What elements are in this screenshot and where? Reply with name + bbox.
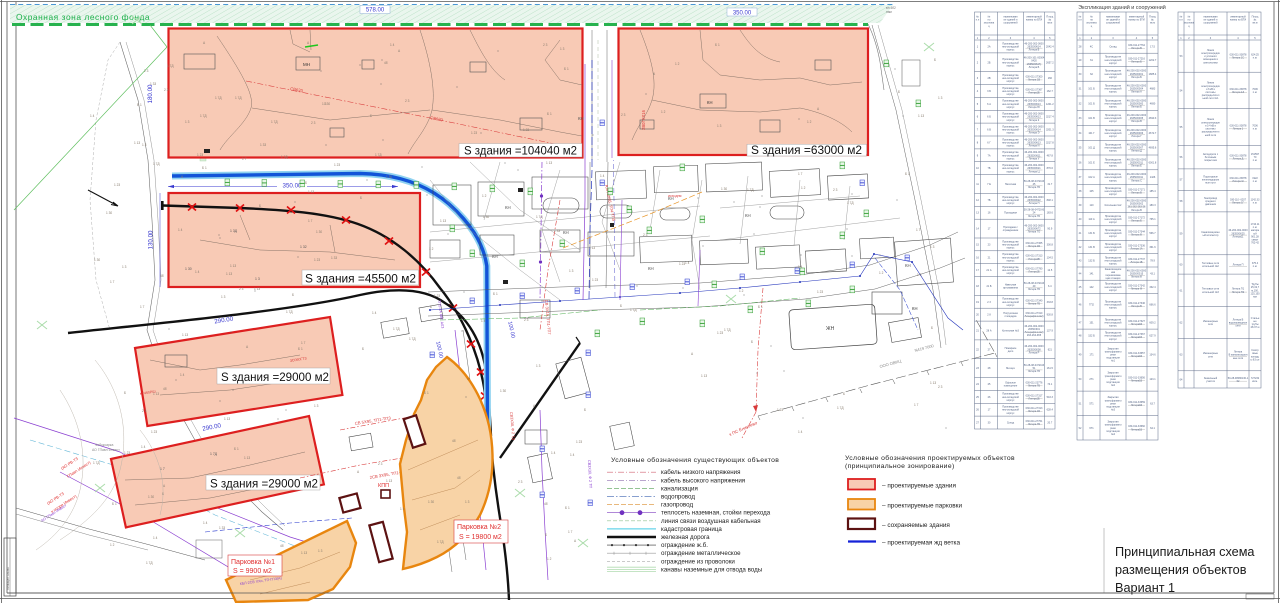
svg-text:кадастровая граница: кадастровая граница (661, 526, 722, 533)
svg-text:Литера 1Б: Литера 1Б (1028, 245, 1040, 248)
svg-text:сети: сети (1235, 325, 1241, 328)
svg-text:1885.4: 1885.4 (1149, 73, 1157, 76)
svg-text:газопровод: газопровод (661, 502, 693, 509)
svg-text:4690.3: 4690.3 (1149, 117, 1157, 120)
svg-text:корпус: корпус (1109, 120, 1117, 123)
svg-text:1 13: 1 13 (589, 246, 595, 250)
svg-text:2 3: 2 3 (543, 43, 548, 47)
svg-text:Литера П2: Литера П2 (1232, 291, 1245, 294)
svg-text:Литера ГБ: Литера ГБ (1028, 423, 1040, 426)
svg-text:123.1: 123.1 (1149, 378, 1156, 381)
svg-text:1 2: 1 2 (661, 110, 666, 114)
svg-text:Литера В: Литера В (1131, 47, 1142, 50)
svg-text:Литера Ф: Литера Ф (1131, 276, 1142, 279)
svg-text:корпус: корпус (1109, 289, 1117, 292)
svg-text:1 23: 1 23 (777, 408, 783, 412)
svg-text:АО ГПавл Инвест: АО ГПавл Инвест (92, 448, 120, 452)
svg-text:2 3: 2 3 (239, 287, 244, 291)
svg-text:корпус: корпус (1007, 106, 1015, 109)
svg-text:6Т1: 6Т1 (1089, 427, 1094, 430)
svg-text:Литера Г: Литера Г (1131, 135, 1142, 138)
svg-text:1 3: 1 3 (938, 96, 943, 100)
svg-text:1 7Д: 1 7Д (210, 452, 218, 456)
svg-text:2 3: 2 3 (621, 113, 626, 117)
svg-text:КН: КН (505, 205, 511, 210)
svg-text:2 3: 2 3 (378, 462, 383, 466)
svg-text:21 Б: 21 Б (986, 285, 991, 288)
svg-text:Литера Б: Литера Б (1131, 106, 1142, 109)
svg-text:пам: пам (886, 10, 892, 14)
svg-text:Литера П: Литера П (1233, 264, 1244, 267)
svg-text:2В0ГХХ16: 2В0ГХХ16 (641, 109, 646, 130)
svg-text:корпус: корпус (1007, 64, 1015, 67)
svg-text:1 7Д: 1 7Д (847, 201, 854, 205)
svg-text:3217.4: 3217.4 (1046, 116, 1054, 119)
svg-text:1 7Д: 1 7Д (281, 155, 288, 159)
svg-text:корпус: корпус (1109, 338, 1117, 341)
svg-text:Литера В: Литера В (1131, 120, 1142, 123)
svg-text:1 23: 1 23 (151, 430, 157, 434)
svg-text:номер по БТИ: номер по БТИ (1128, 19, 1144, 22)
svg-text:корпус: корпус (1007, 202, 1015, 205)
svg-text:1 7Д: 1 7Д (286, 310, 293, 314)
svg-text:166: 166 (1048, 77, 1053, 80)
svg-text:канавы наземные для отвода вод: канавы наземные для отвода воды (661, 566, 763, 573)
svg-text:ПРИНЦИП СХЕМА: ПРИНЦИП СХЕМА (6, 567, 10, 590)
svg-text:350.00: 350.00 (733, 11, 752, 17)
svg-text:1 30: 1 30 (428, 500, 434, 504)
svg-text:6.4: 6.4 (1048, 285, 1052, 288)
svg-text:1 30: 1 30 (386, 175, 392, 179)
svg-text:ьной сети: ьной сети (1205, 134, 1217, 137)
svg-text:корпус: корпус (1109, 263, 1117, 266)
svg-text:Литера ГБ: Литера ГБ (1028, 215, 1040, 218)
svg-text:Литера Ж: Литера Ж (1232, 180, 1244, 183)
svg-text:ьной сети №1: ьной сети №1 (1202, 97, 1219, 100)
svg-text:кв.м: кв.м (1150, 22, 1155, 25)
svg-text:1 7Д: 1 7Д (837, 406, 844, 410)
svg-text:Б: Б (545, 533, 547, 537)
svg-text:101 Г: 101 Г (1088, 132, 1095, 135)
svg-text:6001.8: 6001.8 (1149, 161, 1157, 164)
svg-text:1 7Д: 1 7Д (271, 120, 278, 124)
svg-text:сооружений: сооружений (1004, 22, 1019, 25)
svg-text:1 33: 1 33 (219, 526, 225, 530)
svg-text:корпус: корпус (1007, 259, 1015, 262)
svg-text:сооружений: сооружений (1106, 22, 1121, 25)
svg-text:Б 1: Б 1 (112, 502, 117, 506)
svg-text:1 2: 1 2 (675, 62, 680, 66)
svg-text:1 7Д: 1 7Д (724, 328, 731, 332)
svg-text:1 7Д: 1 7Д (375, 153, 382, 157)
svg-text:корпус: корпус (1007, 119, 1015, 122)
svg-text:1 30: 1 30 (500, 389, 506, 393)
svg-text:ый коллектор: ый коллектор (1203, 234, 1219, 237)
svg-text:1 3: 1 3 (917, 273, 922, 277)
svg-text:627.9: 627.9 (1149, 335, 1156, 338)
svg-text:110 А: 110 А (1088, 218, 1095, 221)
svg-text:1 2: 1 2 (110, 543, 115, 547)
svg-text:6 Б: 6 Б (987, 116, 991, 119)
svg-text:1 7: 1 7 (301, 341, 306, 345)
svg-text:корпус: корпус (1109, 150, 1117, 153)
svg-text:Проходная: Проходная (1004, 212, 1017, 215)
svg-text:Литера1Б: Литера1Б (1131, 404, 1143, 407)
svg-text:1 13: 1 13 (244, 456, 250, 460)
svg-text:185.4: 185.4 (1149, 190, 1156, 193)
svg-text:корпус: корпус (1007, 304, 1015, 307)
svg-text:930.8: 930.8 (1047, 314, 1054, 317)
svg-text:1 23: 1 23 (197, 153, 203, 157)
svg-text:корпус: корпус (1007, 272, 1015, 275)
svg-text:Литера Б: Литера Б (1131, 220, 1142, 223)
svg-text:№3: №3 (1111, 409, 1116, 412)
svg-text:1 23: 1 23 (523, 128, 529, 132)
svg-text:Условные обозначения проектиру: Условные обозначения проектируемых объек… (845, 454, 1015, 462)
svg-text:кабель высокого напряжения: кабель высокого напряжения (661, 477, 745, 484)
svg-text:ограждение ж.б.: ограждение ж.б. (661, 542, 708, 549)
svg-text:Экспликация зданий и сооружени: Экспликация зданий и сооружений (1078, 4, 1166, 11)
svg-text:609.2: 609.2 (1149, 321, 1156, 324)
svg-text:2657.2: 2657.2 (1046, 61, 1054, 64)
svg-text:1 13: 1 13 (701, 374, 707, 378)
svg-text:1 23: 1 23 (434, 294, 440, 298)
svg-text:давления: давления (1205, 203, 1217, 206)
svg-text:теплосеть наземная, стойки пер: теплосеть наземная, стойки перехода (661, 510, 771, 517)
svg-text:1 4: 1 4 (195, 270, 200, 274)
svg-text:4672.7: 4672.7 (1149, 132, 1157, 135)
svg-text:1 33: 1 33 (150, 82, 156, 86)
svg-text:101 Д: 101 Д (1088, 147, 1095, 150)
svg-text:1426: 1426 (1150, 176, 1156, 179)
svg-text:1 13: 1 13 (440, 219, 446, 223)
svg-text:2 3: 2 3 (142, 409, 147, 413)
svg-text:142: 142 (1089, 286, 1094, 289)
svg-text:корпус: корпус (1007, 145, 1015, 148)
svg-text:1 13: 1 13 (386, 479, 392, 483)
svg-text:Б: Б (620, 304, 622, 308)
svg-text:1 2: 1 2 (807, 120, 812, 124)
svg-text:1 3: 1 3 (142, 143, 147, 147)
svg-text:1 4: 1 4 (570, 453, 575, 457)
svg-text:1 2: 1 2 (801, 186, 806, 190)
svg-text:Чебоксарка: Чебоксарка (95, 443, 113, 447)
svg-text:6 В: 6 В (987, 129, 991, 132)
svg-text:2 3: 2 3 (938, 385, 943, 389)
svg-text:21 А: 21 А (986, 269, 991, 272)
svg-text:1 2: 1 2 (429, 247, 434, 251)
svg-text:корпус: корпус (1109, 307, 1117, 310)
svg-text:корпус: корпус (1007, 247, 1015, 250)
svg-text:1 4: 1 4 (600, 174, 605, 178)
svg-text:131 Б: 131 Б (1088, 232, 1095, 235)
svg-text:1 13: 1 13 (546, 161, 552, 165)
svg-text:Литера 1: Литера 1 (1233, 128, 1244, 131)
svg-text:котельной №2: котельной №2 (1202, 265, 1219, 268)
svg-text:1 7: 1 7 (110, 280, 115, 284)
svg-text:765.1: 765.1 (1149, 218, 1156, 221)
svg-text:Литера В: Литера В (1131, 305, 1142, 308)
svg-text:1 30: 1 30 (148, 495, 154, 499)
svg-text:4695.6: 4695.6 (1149, 147, 1157, 150)
svg-text:п.м.: п.м. (1253, 180, 1258, 183)
svg-text:4б: 4б (452, 439, 456, 443)
svg-text:1 23: 1 23 (576, 440, 582, 444)
svg-text:корпус: корпус (1007, 412, 1015, 415)
svg-text:7 Е: 7 Е (987, 183, 991, 186)
svg-text:1 7: 1 7 (798, 172, 803, 176)
svg-text:1 2: 1 2 (482, 194, 487, 198)
svg-text:Литера К: Литера К (1029, 119, 1040, 122)
svg-text:1 7: 1 7 (160, 467, 165, 471)
svg-text:п.м.: п.м. (1253, 128, 1258, 131)
svg-text:корпус: корпус (1109, 235, 1117, 238)
svg-text:Литера Б: Литера Б (1131, 60, 1142, 63)
svg-text:2Б: 2Б (987, 61, 990, 64)
svg-text:кабель низкого напряжения: кабель низкого напряжения (661, 469, 741, 476)
svg-text:корпус: корпус (1109, 179, 1117, 182)
svg-text:151: 151 (1089, 321, 1094, 324)
svg-text:132 Б: 132 Б (1088, 259, 1095, 262)
svg-text:помещение: помещение (1004, 385, 1018, 388)
svg-text:3201.3: 3201.3 (1046, 129, 1054, 132)
svg-text:Склад: Склад (1109, 46, 1117, 49)
svg-text:S здания =63000 м2: S здания =63000 м2 (751, 143, 862, 157)
svg-text:площадка: площадка (1005, 315, 1017, 318)
svg-text:64.1: 64.1 (1150, 427, 1155, 430)
svg-text:1 30: 1 30 (721, 187, 727, 191)
svg-text:корпус: корпус (1109, 62, 1117, 65)
svg-text:180.3: 180.3 (1149, 204, 1156, 207)
svg-text:1Т1: 1Т1 (1089, 354, 1094, 357)
svg-text:1 30: 1 30 (483, 215, 489, 219)
svg-text:566.7: 566.7 (1149, 232, 1156, 235)
svg-text:корпус: корпус (1109, 165, 1117, 168)
svg-text:28 А: 28 А (986, 330, 991, 333)
svg-text:корпус: корпус (1007, 157, 1015, 160)
svg-text:1201.2: 1201.2 (1046, 103, 1054, 106)
svg-text:Литера Д: Литера Д (1131, 150, 1142, 153)
svg-text:1 3: 1 3 (122, 265, 127, 269)
svg-text:Литера Б: Литера Б (1029, 66, 1040, 69)
svg-text:Литера(№1-№2): Литера(№1-№2) (1025, 315, 1044, 318)
svg-text:1 7Д: 1 7Д (215, 96, 222, 100)
svg-text:Б 1: Б 1 (758, 305, 763, 309)
svg-text:ограждение из проволоки: ограждение из проволоки (661, 558, 735, 565)
svg-text:Котельная №3: Котельная №3 (1002, 330, 1019, 333)
svg-text:1 3: 1 3 (465, 500, 470, 504)
svg-text:размещения объектов: размещения объектов (1115, 563, 1247, 577)
svg-text:333.8: 333.8 (1047, 301, 1054, 304)
svg-text:134.5: 134.5 (1047, 256, 1054, 259)
svg-text:1 30: 1 30 (106, 211, 112, 215)
svg-text:Литера У: Литера У (1029, 157, 1040, 160)
svg-text:2 3: 2 3 (524, 318, 529, 322)
svg-text:1 13: 1 13 (134, 141, 140, 145)
svg-text:Литера1Б: Литера1Б (1028, 271, 1040, 274)
svg-text:Литера Ф: Литера Ф (1131, 234, 1142, 237)
svg-text:Литера 1З: Литера 1З (1232, 91, 1244, 94)
svg-text:покрытием: покрытием (1204, 159, 1217, 162)
svg-text:1 7Д: 1 7Д (393, 327, 400, 331)
svg-text:1 13: 1 13 (230, 264, 236, 268)
svg-text:1 3: 1 3 (322, 102, 327, 106)
svg-text:Принципиальная схема: Принципиальная схема (1115, 545, 1255, 559)
svg-text:Условные обозначения существую: Условные обозначения существующих объект… (611, 456, 779, 464)
svg-text:1 13: 1 13 (930, 381, 936, 385)
svg-text:4690: 4690 (1150, 102, 1156, 105)
svg-text:152 Б: 152 Б (1088, 335, 1095, 338)
svg-text:1 13: 1 13 (918, 114, 924, 118)
svg-text:1 7: 1 7 (308, 219, 313, 223)
svg-text:1 13: 1 13 (226, 272, 232, 276)
svg-text:Б: Б (430, 305, 432, 309)
svg-text:корпус: корпус (1007, 399, 1015, 402)
svg-text:1 2: 1 2 (739, 289, 744, 293)
svg-text:Б 1: Б 1 (547, 112, 552, 116)
svg-text:1 4: 1 4 (798, 265, 803, 269)
svg-text:1 7: 1 7 (914, 403, 919, 407)
svg-text:1 3: 1 3 (536, 364, 541, 368)
svg-text:котельной №3: котельной №3 (1202, 291, 1219, 294)
svg-text:Литера В: Литера В (1131, 192, 1142, 195)
svg-text:467.8: 467.8 (1047, 154, 1054, 157)
svg-text:2 3: 2 3 (987, 301, 991, 304)
svg-text:корпус: корпус (1109, 325, 1117, 328)
svg-text:3217.8: 3217.8 (1046, 141, 1054, 144)
svg-text:7А: 7А (987, 154, 990, 157)
svg-text:Б 1: Б 1 (493, 292, 498, 296)
svg-text:361.6: 361.6 (1149, 246, 1156, 249)
svg-text:1 2: 1 2 (879, 271, 884, 275)
svg-text:1 23: 1 23 (817, 290, 823, 294)
svg-text:ные пути: ные пути (1205, 182, 1216, 185)
svg-text:S = 9900 м2: S = 9900 м2 (233, 568, 272, 575)
svg-text:– проектируемые парковки: – проектируемые парковки (882, 503, 962, 510)
svg-text:1 3: 1 3 (255, 277, 260, 281)
svg-text:Литера 1В: Литера 1В (1028, 79, 1040, 82)
svg-text:1 4: 1 4 (372, 311, 377, 315)
svg-text:Литера1В: Литера1В (1028, 258, 1040, 261)
svg-text:Литера ГБ: Литера ГБ (1028, 302, 1040, 305)
svg-text:Б: Б (934, 58, 936, 62)
svg-text:КН: КН (563, 230, 569, 235)
svg-text:1 7Д: 1 7Д (146, 561, 153, 565)
svg-text:162.7: 162.7 (1047, 90, 1054, 93)
svg-text:канализация: канализация (661, 485, 698, 492)
svg-text:Литера 1Г: Литера 1Г (1232, 202, 1244, 205)
svg-text:7Б: 7Б (987, 167, 990, 170)
svg-text:101 Б: 101 Б (1088, 88, 1095, 91)
svg-text:корпус: корпус (1109, 221, 1117, 224)
svg-text:п.м.: п.м. (1253, 265, 1258, 268)
svg-text:Б: Б (843, 392, 845, 396)
svg-text:1 23: 1 23 (471, 131, 477, 135)
svg-text:Б 1: Б 1 (137, 103, 142, 107)
svg-text:666.6: 666.6 (1149, 304, 1156, 307)
svg-text:1 3: 1 3 (560, 47, 565, 51)
svg-text:543.3: 543.3 (1047, 396, 1054, 399)
svg-text:Литера С: Литера С (1131, 179, 1142, 182)
svg-text:щая станция: щая станция (1106, 277, 1121, 280)
svg-text:– сохраняемые здания: – сохраняемые здания (882, 522, 950, 529)
svg-text:ограждение металлическое: ограждение металлическое (661, 550, 741, 557)
svg-text:2В: 2В (987, 77, 990, 80)
svg-text:1 30: 1 30 (185, 267, 192, 271)
svg-text:Б: Б (898, 90, 900, 94)
svg-text:1 7Д: 1 7Д (536, 215, 543, 219)
svg-text:1 3: 1 3 (185, 120, 190, 124)
svg-text:1 3: 1 3 (318, 549, 323, 553)
svg-text:1 23: 1 23 (592, 278, 598, 282)
svg-text:S здания =45500 м2: S здания =45500 м2 (305, 272, 416, 286)
svg-text:1 7Д: 1 7Д (409, 337, 416, 341)
svg-text:1 4: 1 4 (180, 373, 185, 377)
svg-text:S здания =104040 м2: S здания =104040 м2 (464, 144, 577, 158)
svg-text:ные сети: ные сети (1233, 357, 1244, 360)
svg-text:КН: КН (905, 263, 911, 268)
svg-text:1 4: 1 4 (400, 507, 405, 511)
svg-text:848.1: 848.1 (1047, 199, 1054, 202)
svg-text:2Т1: 2Т1 (1089, 378, 1094, 381)
svg-text:Литера1Б: Литера1Б (1131, 428, 1143, 431)
svg-text:2 3: 2 3 (144, 69, 149, 73)
svg-text:Литера ГБ: Литера ГБ (1028, 288, 1040, 291)
svg-text:ТП2: ТП2 (1089, 304, 1094, 307)
svg-text:1 4: 1 4 (551, 451, 556, 455)
svg-text:101 Б: 101 Б (1088, 102, 1095, 105)
svg-text:4б: 4б (163, 387, 167, 391)
svg-text:43.1: 43.1 (1150, 273, 1155, 276)
svg-text:1 3: 1 3 (314, 404, 319, 408)
svg-text:1 7: 1 7 (568, 530, 573, 534)
svg-text:4б: 4б (280, 544, 284, 548)
svg-text:корпус: корпус (1007, 132, 1015, 135)
svg-text:4б: 4б (457, 476, 461, 480)
svg-text:Литера1Б: Литера1Б (1131, 355, 1143, 358)
svg-text:1 7Д: 1 7Д (153, 162, 160, 166)
svg-text:Парковка №2: Парковка №2 (457, 524, 501, 531)
svg-text:1 4: 1 4 (153, 536, 158, 540)
svg-text:Охранная зона лесного фонда: Охранная зона лесного фонда (16, 12, 150, 22)
svg-text:762-42: 762-42 (1251, 242, 1259, 245)
svg-text:Б: Б (124, 391, 126, 395)
svg-text:корпус: корпус (1109, 135, 1117, 138)
svg-text:Литера1Б: Литера1Б (1028, 92, 1040, 95)
svg-text:– проектируемые здания: – проектируемые здания (882, 483, 956, 490)
svg-text:Литера В: Литера В (1131, 209, 1142, 212)
svg-text:кв.м: кв.м (1253, 22, 1258, 25)
svg-text:1 33: 1 33 (331, 256, 337, 260)
svg-text:1 4: 1 4 (203, 521, 208, 525)
svg-text:корпус: корпус (1109, 76, 1117, 79)
svg-text:4б: 4б (384, 61, 388, 65)
svg-text:183.6: 183.6 (1047, 212, 1054, 215)
svg-text:КН: КН (578, 116, 584, 121)
svg-text:1 23: 1 23 (314, 258, 320, 262)
svg-text:876.6: 876.6 (1047, 167, 1054, 170)
svg-text:номер по БТИ: номер по БТИ (1230, 19, 1246, 22)
svg-text:корпус: корпус (1007, 80, 1015, 83)
svg-text:101 Е: 101 Е (1088, 161, 1095, 164)
svg-text:1 2: 1 2 (547, 557, 552, 561)
svg-text:корпус: корпус (1007, 93, 1015, 96)
svg-text:Литера 1Б: Литера 1Б (1028, 410, 1040, 413)
svg-text:корпус: корпус (1109, 249, 1117, 252)
svg-text:сети: сети (1208, 323, 1214, 326)
svg-text:Литера11: Литера11 (1233, 235, 1245, 238)
svg-text:1 4: 1 4 (90, 114, 95, 118)
